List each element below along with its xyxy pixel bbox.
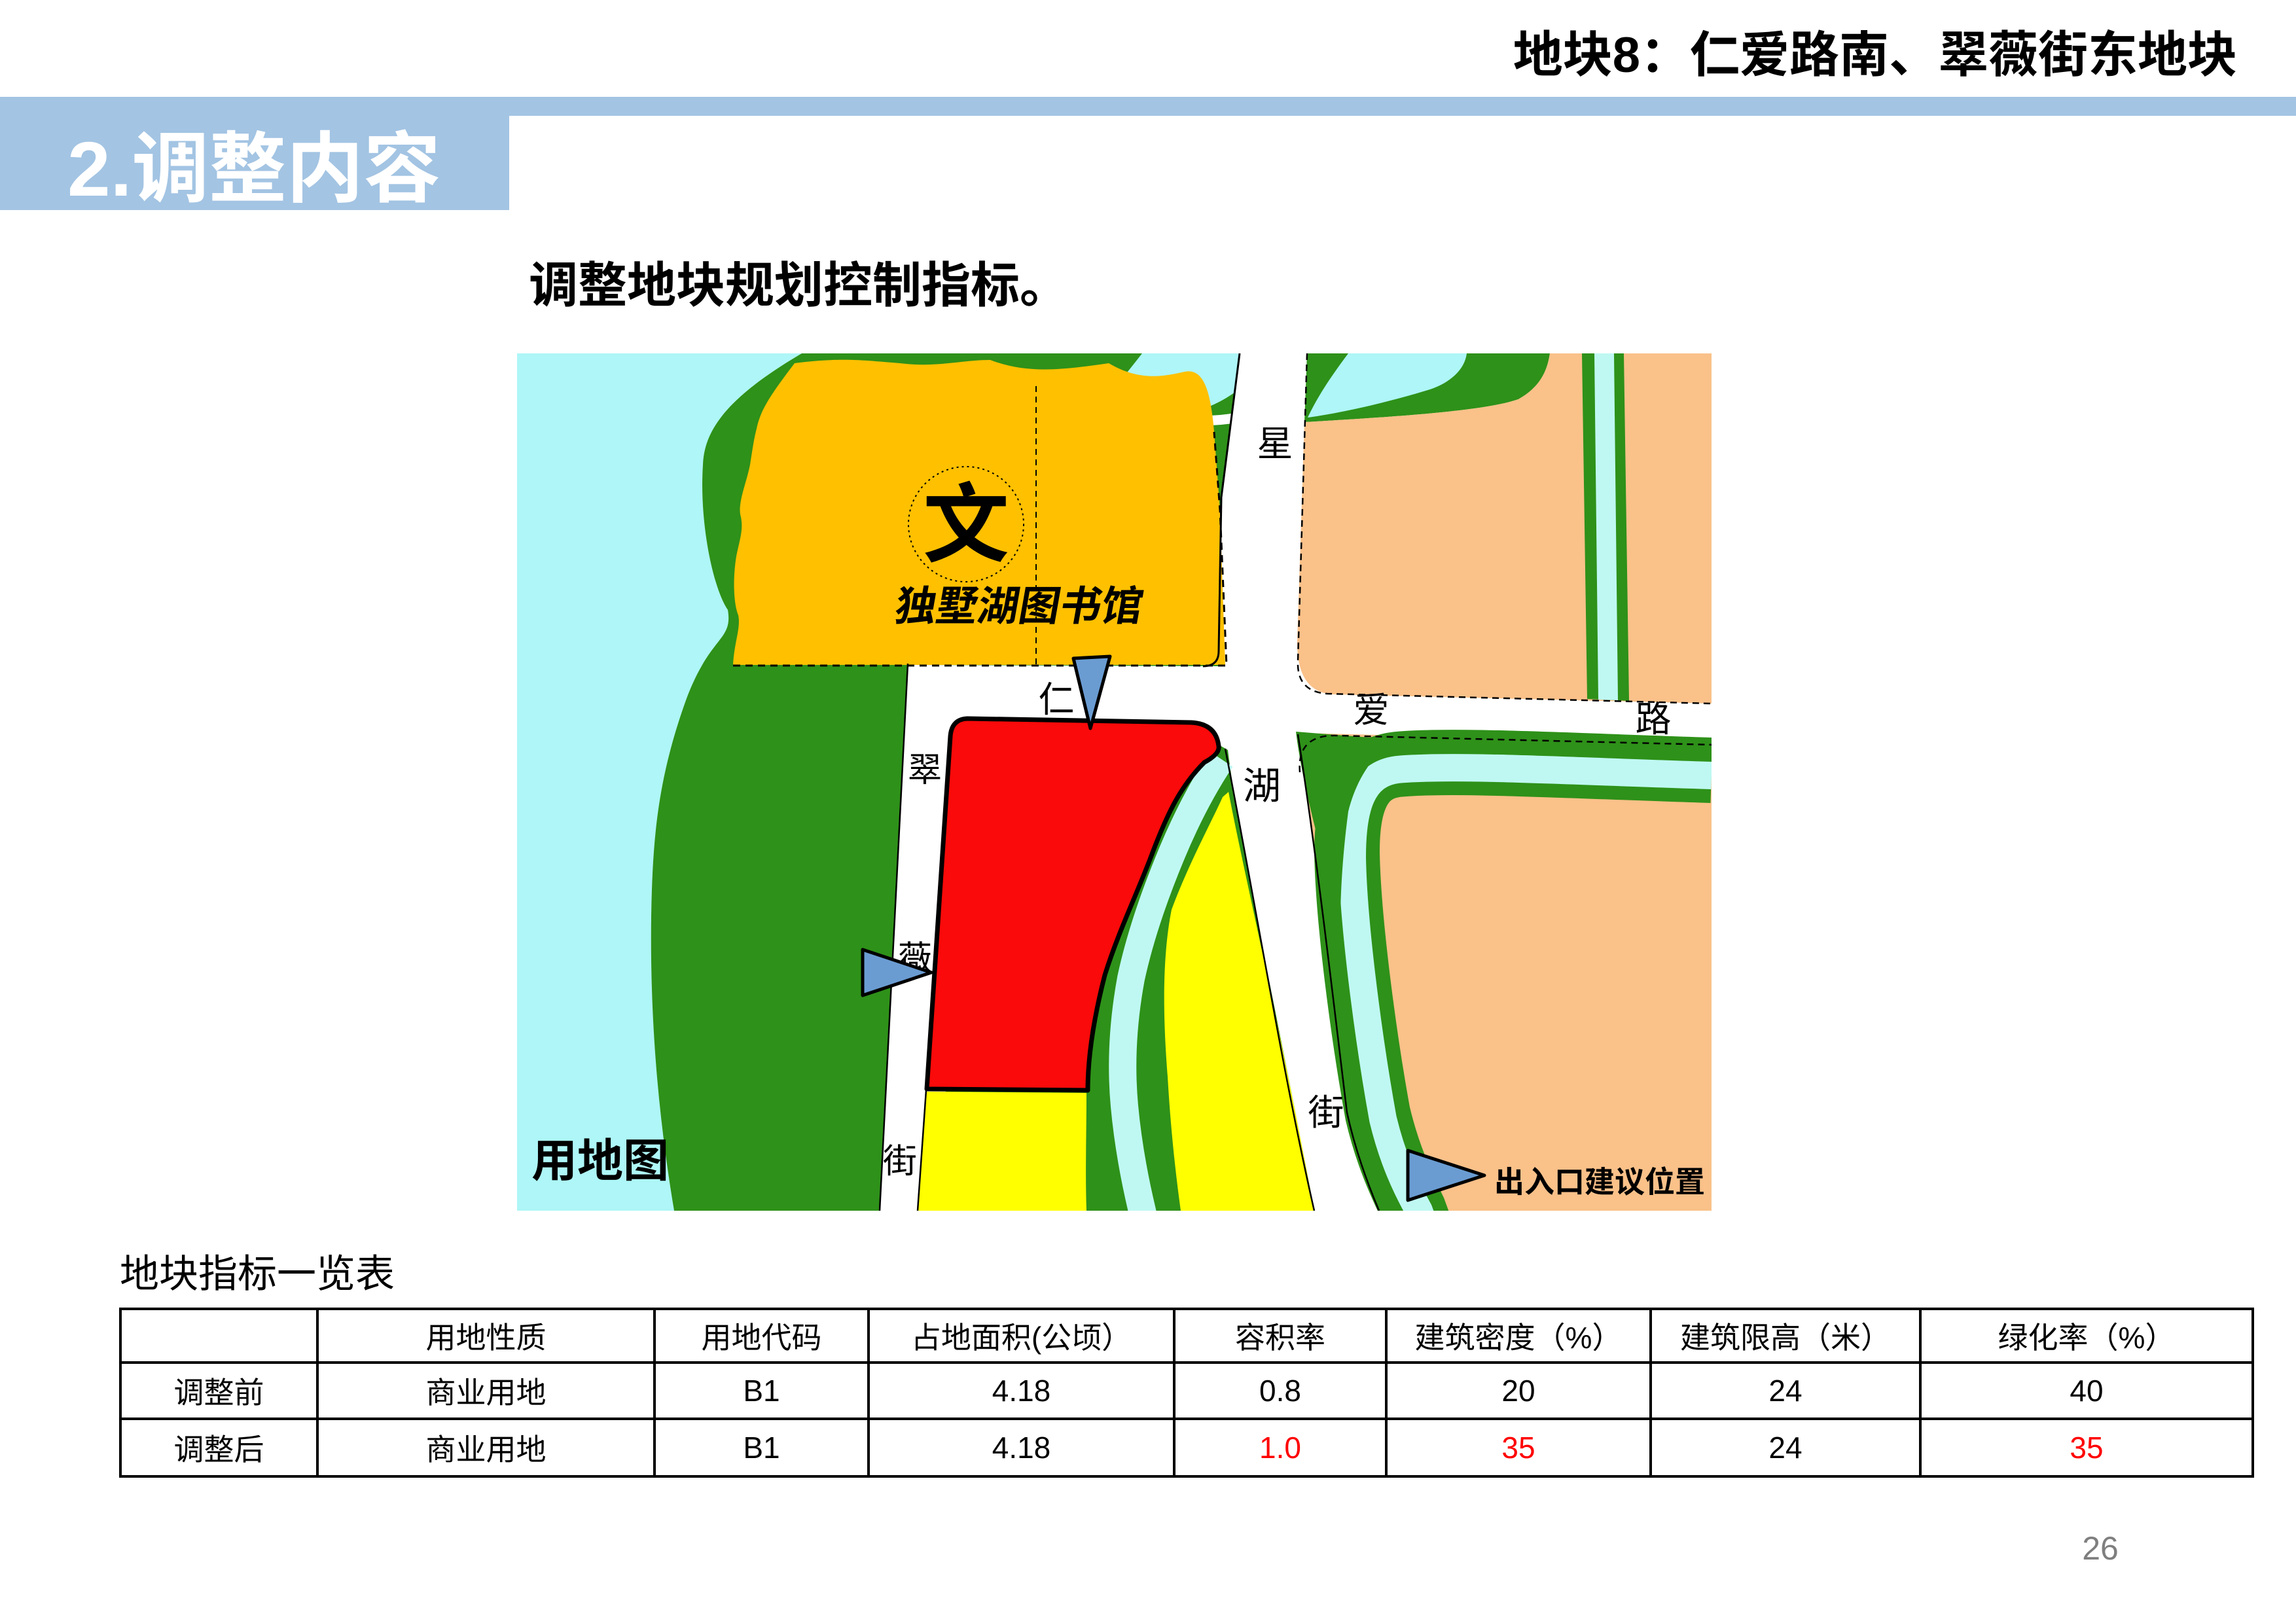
svg-text:街: 街 — [1308, 1092, 1344, 1133]
svg-text:独墅湖图书馆: 独墅湖图书馆 — [891, 584, 1147, 629]
svg-text:出入口建议位置: 出入口建议位置 — [1494, 1165, 1705, 1199]
svg-text:用地图: 用地图 — [531, 1135, 669, 1186]
svg-text:爱: 爱 — [1353, 690, 1389, 730]
svg-text:湖: 湖 — [1243, 765, 1281, 808]
svg-text:文: 文 — [923, 477, 1009, 573]
svg-text:仁: 仁 — [1038, 679, 1074, 720]
svg-text:翠: 翠 — [908, 751, 942, 789]
svg-text:星: 星 — [1257, 423, 1293, 464]
svg-text:路: 路 — [1635, 699, 1671, 740]
svg-text:街: 街 — [883, 1143, 917, 1181]
